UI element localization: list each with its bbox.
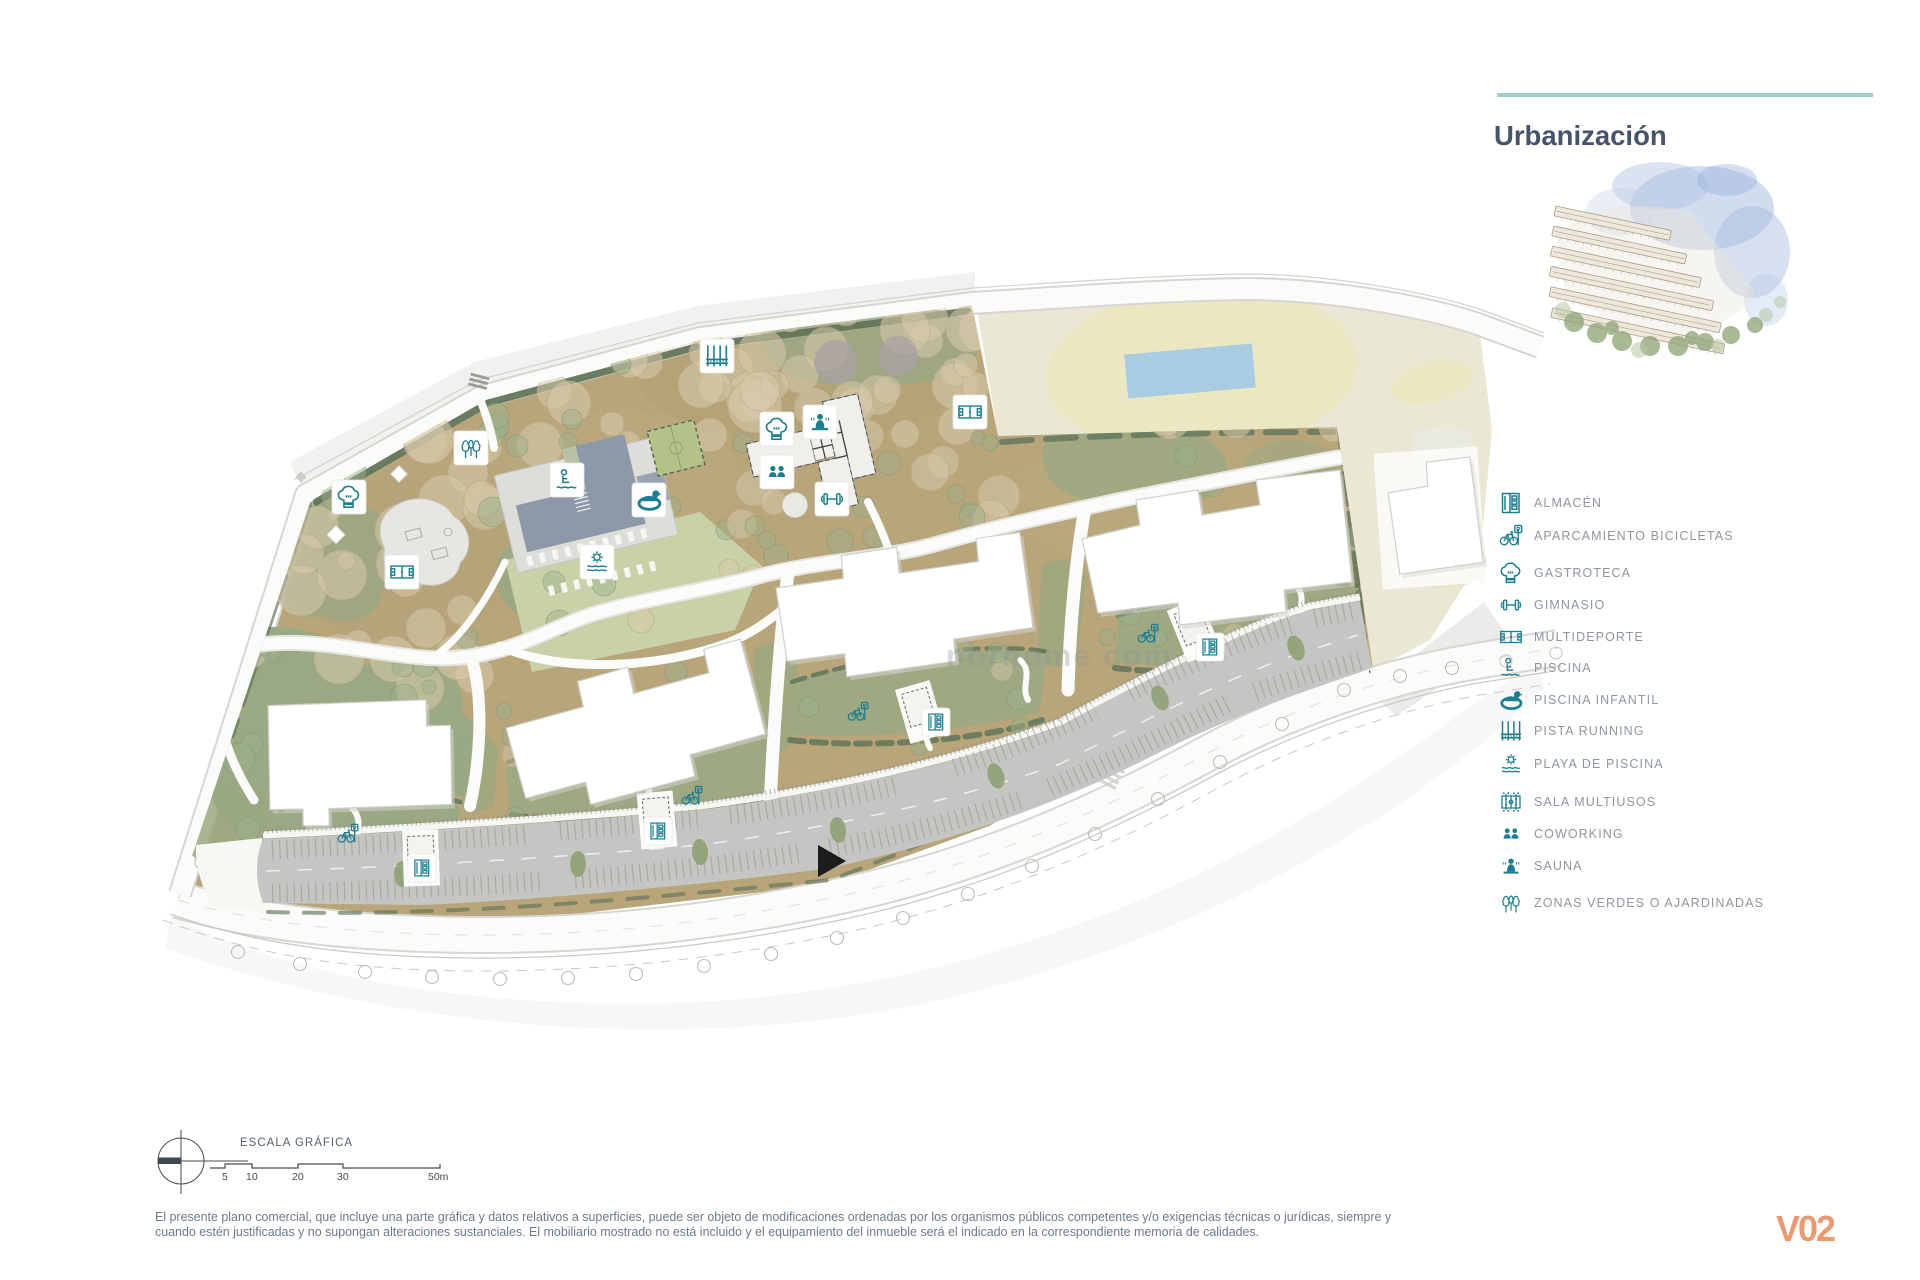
svg-text:10: 10 [246,1171,258,1183]
svg-text:5: 5 [222,1171,228,1183]
svg-text:cuando estén justificadas y no: cuando estén justificadas y no supongan … [155,1225,1259,1239]
svg-text:ALMACÉN: ALMACÉN [1534,495,1602,510]
svg-text:Urbanización: Urbanización [1494,120,1667,151]
svg-text:PLAYA DE PISCINA: PLAYA DE PISCINA [1534,757,1664,771]
svg-text:V02: V02 [1776,1208,1835,1249]
svg-text:PISTA RUNNING: PISTA RUNNING [1534,724,1645,738]
svg-text:SALA MULTIUSOS: SALA MULTIUSOS [1534,795,1656,809]
svg-text:APARCAMIENTO BICICLETAS: APARCAMIENTO BICICLETAS [1534,529,1734,543]
svg-text:GASTROTECA: GASTROTECA [1534,566,1631,580]
svg-text:PISCINA: PISCINA [1534,661,1592,675]
svg-text:PISCINA INFANTIL: PISCINA INFANTIL [1534,693,1659,707]
svg-text:MULTIDEPORTE: MULTIDEPORTE [1534,630,1644,644]
svg-text:El presente plano comercial, q: El presente plano comercial, que incluye… [155,1210,1392,1224]
svg-text:30: 30 [337,1171,349,1183]
svg-text:50m: 50m [428,1171,449,1183]
svg-text:norhome com: norhome com [946,638,1173,673]
svg-text:GIMNASIO: GIMNASIO [1534,598,1605,612]
svg-text:ESCALA GRÁFICA: ESCALA GRÁFICA [240,1136,353,1149]
svg-text:SAUNA: SAUNA [1534,859,1583,873]
svg-text:COWORKING: COWORKING [1534,827,1624,841]
svg-text:ZONAS VERDES O AJARDINADAS: ZONAS VERDES O AJARDINADAS [1534,896,1764,910]
svg-text:20: 20 [292,1171,304,1183]
